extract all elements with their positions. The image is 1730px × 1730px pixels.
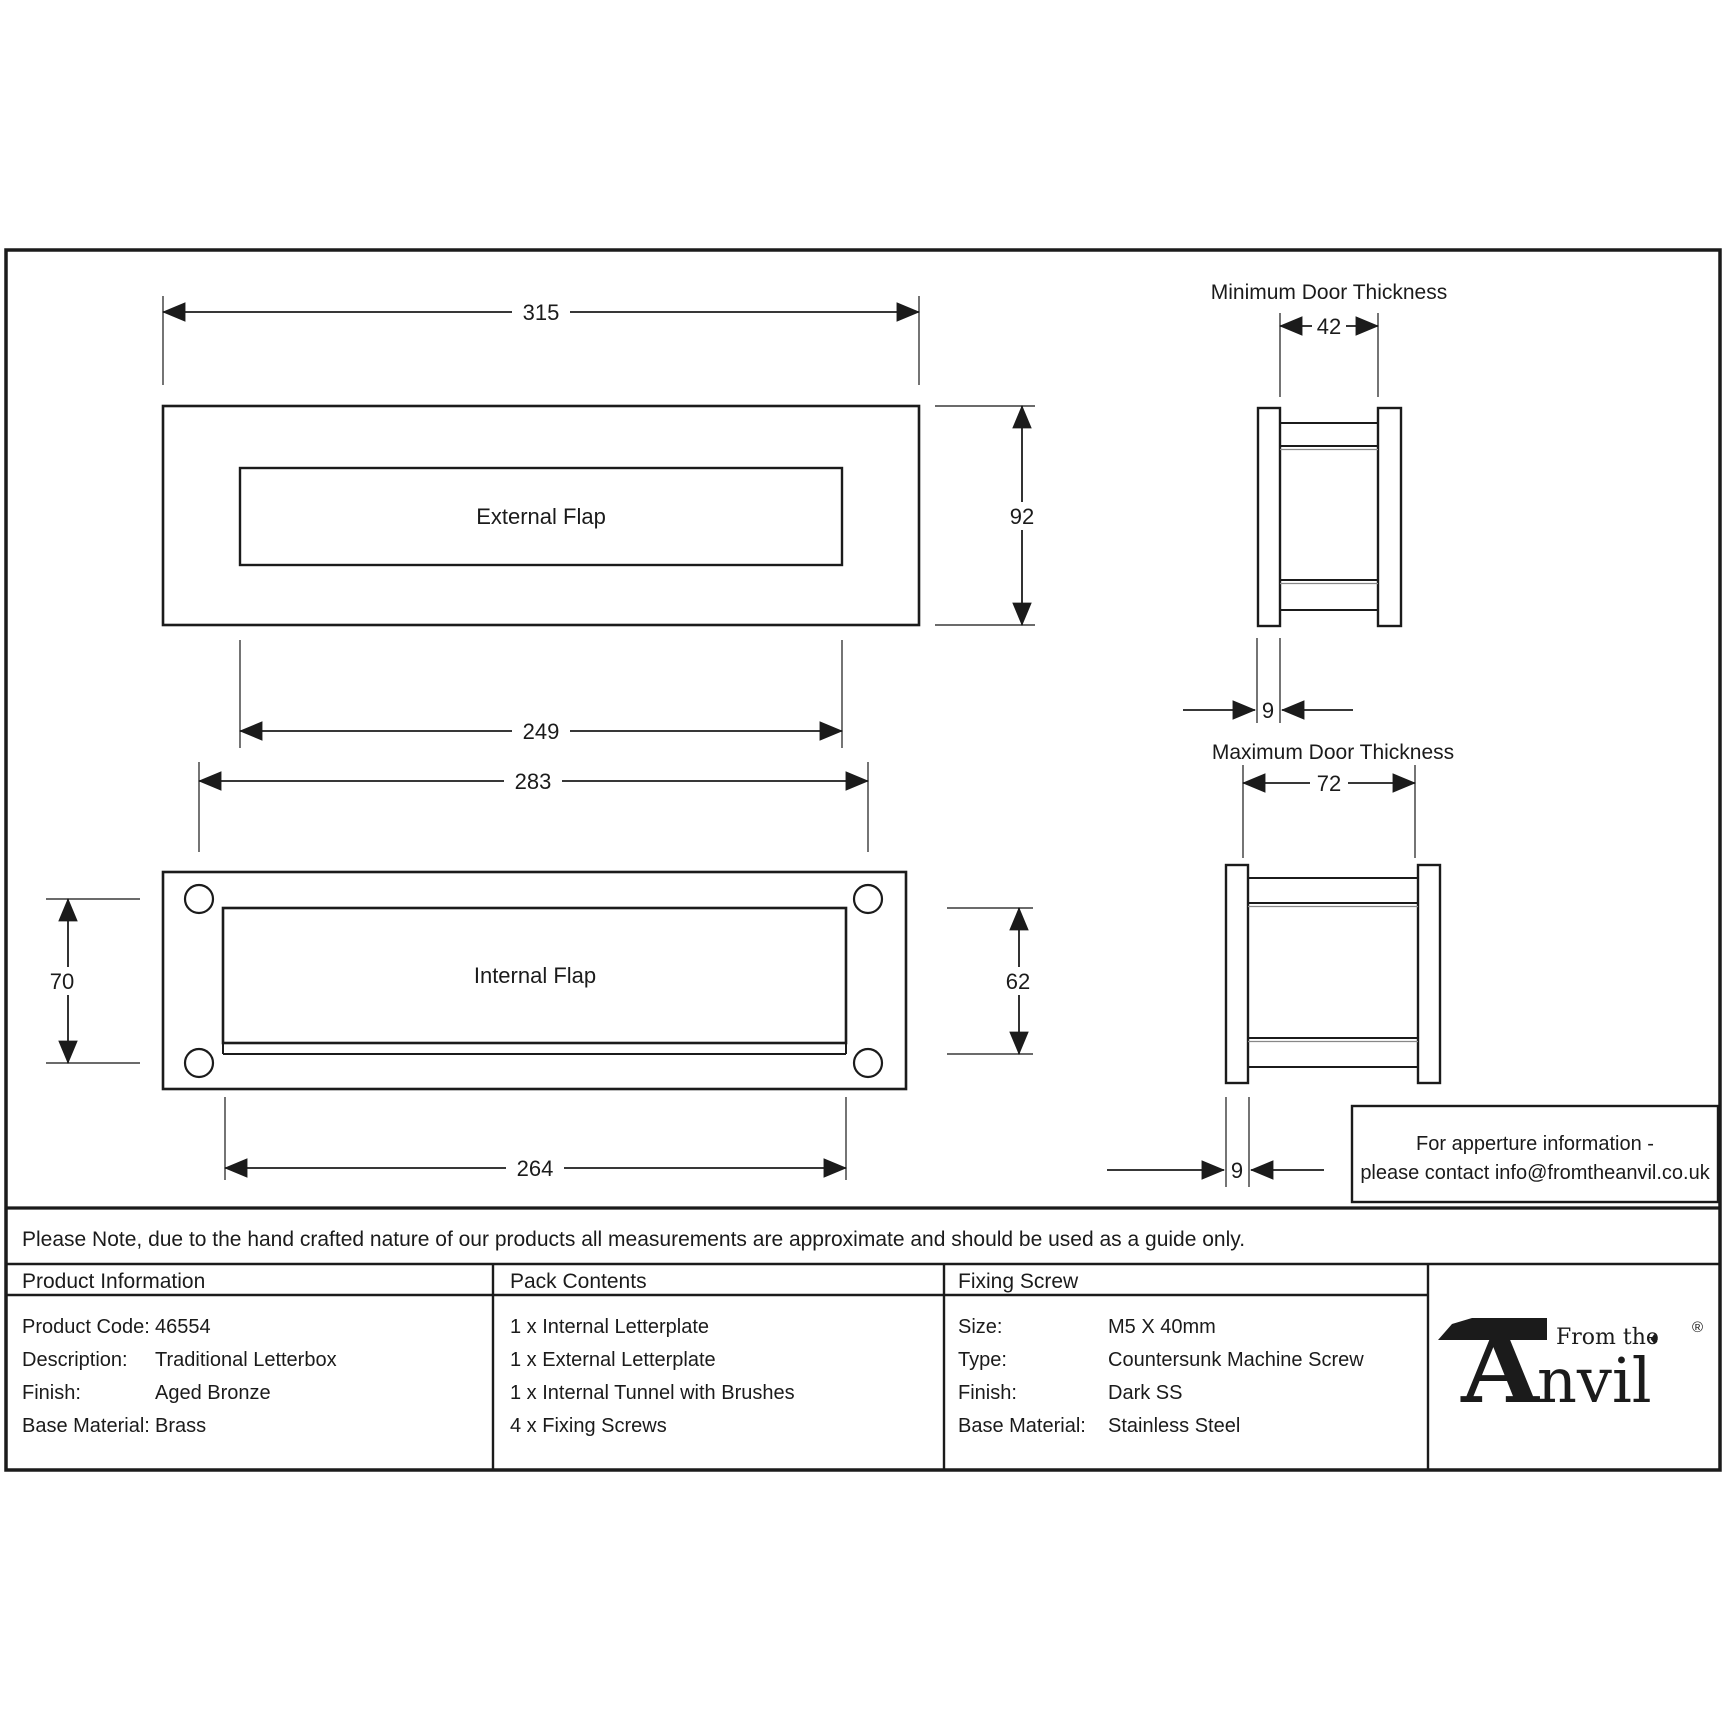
pack-item: 1 x Internal Tunnel with Brushes [510,1382,795,1404]
screw-hole [854,885,882,913]
row-value: Aged Bronze [155,1382,271,1404]
dim-external-width: 315 [523,300,560,325]
anvil-logo-rest: nvil [1537,1344,1652,1417]
row-label: Base Material: [22,1415,150,1437]
column-header: Product Information [22,1270,205,1293]
column-header: Pack Contents [510,1270,647,1293]
max-door-title: Maximum Door Thickness [1212,741,1454,764]
row-value: Brass [155,1415,206,1437]
row-label: Size: [958,1316,1002,1338]
dim-external-inner-width: 249 [523,719,560,744]
dim-max-door-thickness: 72 [1317,771,1341,796]
screw-hole [854,1049,882,1077]
row-label: Product Code: [22,1316,150,1338]
external-plate-profile [1258,408,1280,626]
spec-sheet: 315 External Flap 92 249 283 Internal Fl… [0,0,1730,1730]
dim-max-plate-depth: 9 [1231,1158,1243,1183]
dim-external-height: 92 [1010,504,1034,529]
dim-hole-spacing: 283 [515,769,552,794]
row-value: 46554 [155,1316,211,1338]
internal-flap-label: Internal Flap [474,963,596,988]
screw-hole [185,885,213,913]
dim-internal-aperture-height: 62 [1006,969,1030,994]
aperture-info-line1: For apperture information - [1416,1133,1654,1155]
row-value: M5 X 40mm [1108,1316,1216,1338]
min-door-title: Minimum Door Thickness [1211,281,1448,304]
row-value: Traditional Letterbox [155,1349,337,1371]
row-value: Dark SS [1108,1382,1182,1404]
row-label: Type: [958,1349,1007,1371]
dim-min-door-thickness: 42 [1317,314,1341,339]
aperture-info-box: For apperture information - please conta… [1352,1106,1718,1202]
screw-hole [185,1049,213,1077]
row-value: Countersunk Machine Screw [1108,1349,1364,1371]
pack-item: 1 x External Letterplate [510,1349,716,1371]
external-plate-profile [1226,865,1248,1083]
dim-min-plate-depth: 9 [1262,698,1274,723]
dim-internal-hole-height: 70 [50,969,74,994]
registered-trademark-icon: ® [1692,1319,1703,1336]
disclaimer-note: Please Note, due to the hand crafted nat… [22,1228,1245,1251]
internal-plate-profile [1418,865,1440,1083]
pack-item: 4 x Fixing Screws [510,1415,667,1437]
row-label: Finish: [22,1382,81,1404]
column-header: Fixing Screw [958,1270,1079,1293]
aperture-info-line2: please contact info@fromtheanvil.co.uk [1360,1162,1710,1184]
row-label: Description: [22,1349,128,1371]
pack-item: 1 x Internal Letterplate [510,1316,709,1338]
internal-plate-profile [1378,408,1401,626]
row-value: Stainless Steel [1108,1415,1240,1437]
row-label: Finish: [958,1382,1017,1404]
dim-internal-aperture-width: 264 [517,1156,554,1181]
row-label: Base Material: [958,1415,1086,1437]
external-flap-label: External Flap [476,504,606,529]
